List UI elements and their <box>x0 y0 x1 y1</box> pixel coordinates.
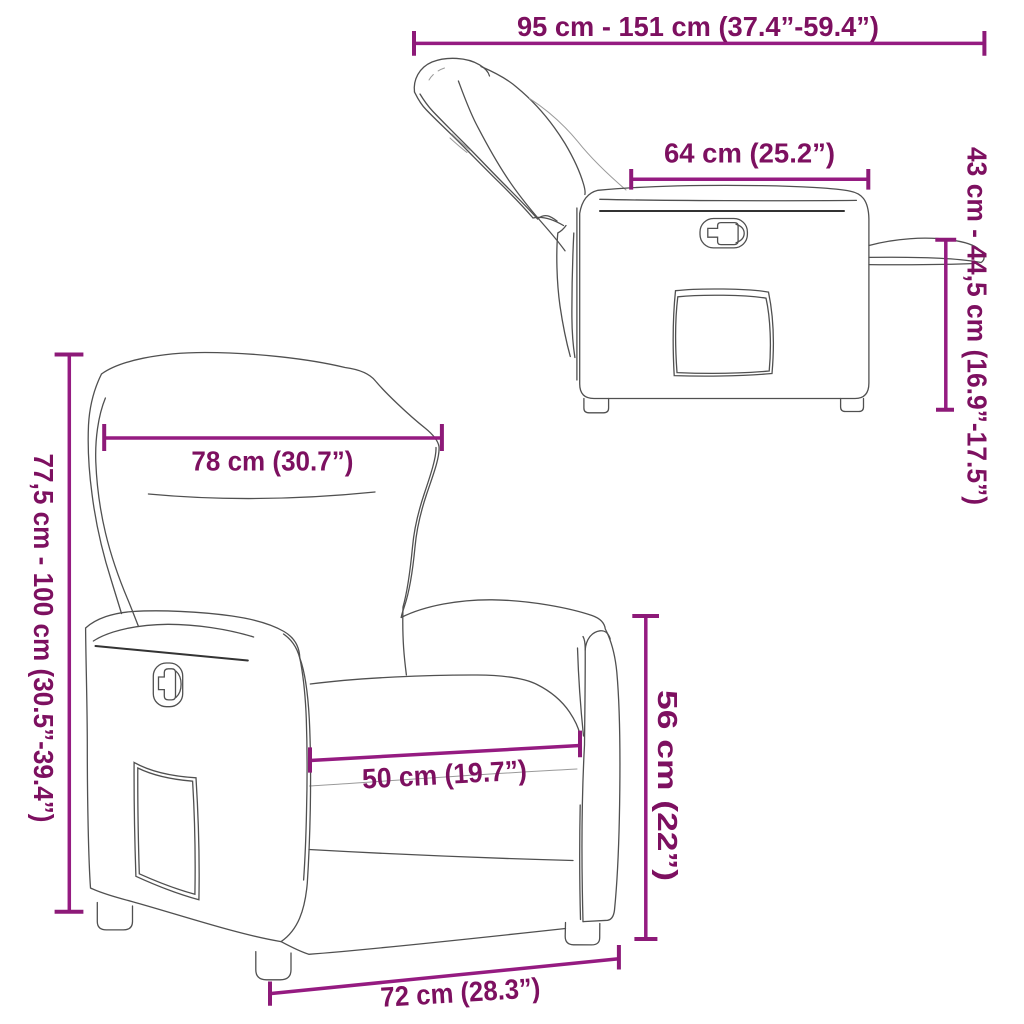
svg-text:95 cm - 151 cm (37.4”-59.4”): 95 cm - 151 cm (37.4”-59.4”) <box>517 11 879 42</box>
svg-text:77,5 cm - 100 cm (30.5”-39.4”): 77,5 cm - 100 cm (30.5”-39.4”) <box>28 454 59 823</box>
svg-text:50 cm (19.7”): 50 cm (19.7”) <box>361 754 527 794</box>
svg-text:43 cm - 44,5 cm (16.9”-17.5”): 43 cm - 44,5 cm (16.9”-17.5”) <box>962 147 993 505</box>
svg-text:72 cm (28.3”): 72 cm (28.3”) <box>380 972 542 1013</box>
svg-text:78 cm (30.7”): 78 cm (30.7”) <box>191 445 353 476</box>
svg-text:64 cm (25.2”): 64 cm (25.2”) <box>664 138 835 169</box>
svg-text:56 cm (22”): 56 cm (22”) <box>652 690 683 881</box>
